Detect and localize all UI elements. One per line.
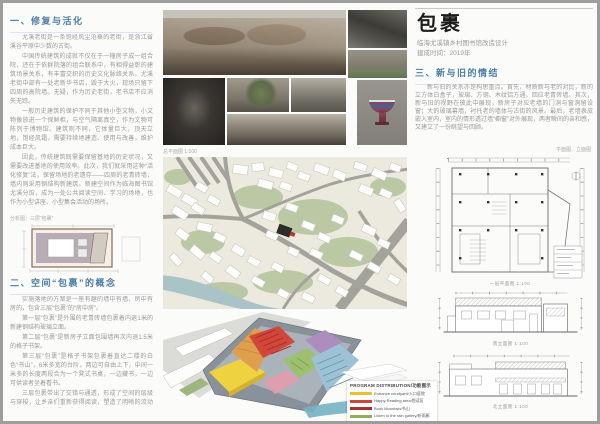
elev1-building	[448, 298, 568, 332]
photo-porcelain-bowl	[357, 80, 407, 145]
paragraph: 因此，传统建筑既需要保留基地的历史状况，又需要改进基地的使用效率。此次，我们就采…	[10, 154, 153, 208]
axon-diagram-wrapper: PROGRAM DISTRIBUTION/功能图示 Entrance court…	[163, 312, 407, 422]
inner-room	[78, 249, 87, 257]
legend-row: Listen to the rain gallery/听雨廊	[350, 413, 434, 419]
drawings-caption: 平面图、立面图	[500, 146, 591, 153]
section1-text: 尤溪老街是一条饱经风尘沧桑的老街，是浙江省溪谷平原中少数的古街。 中国传统建筑的…	[10, 34, 153, 212]
paragraph: 新与旧的关系亦是构思重点。首先，材质新与老的对比，新的立方体白盒子，玻璃、方钢、…	[415, 84, 593, 132]
section2-heading: 二、空间“包裹”的概念	[10, 276, 152, 295]
legend-label: Listen to the rain gallery/听雨廊	[374, 413, 430, 419]
cad-elevation-north	[433, 352, 588, 402]
project-title: 包裹	[417, 13, 463, 35]
cad-elevation-south	[433, 290, 588, 338]
inner-room	[78, 239, 87, 246]
concept-plan-diagram	[18, 223, 150, 273]
section3-heading: 三、新与旧的情结	[415, 66, 593, 85]
photo-dark-interior	[163, 78, 225, 145]
adjacent-context-outline	[122, 237, 140, 261]
paragraph: 尤溪老街是一条饱经风尘沧桑的老街，是浙江省溪谷平原中少数的古街。	[10, 34, 153, 52]
siteplan-caption: 总平面图 1:500	[163, 148, 197, 155]
photo-street-view	[227, 114, 346, 145]
elevation2-caption: 北立面图 1:100	[433, 404, 588, 410]
photo-dark-eaves	[348, 10, 407, 48]
bowl-stem	[379, 113, 386, 122]
bowl-foot	[375, 122, 389, 125]
plan-north-arrow	[572, 172, 580, 180]
legend-swatch	[350, 415, 372, 418]
legend-label: Book Mountain/书山	[374, 406, 410, 412]
paragraph: 实施落地的方案是一座有趣的墙中有墙、房中有房的，包含三层“包裹”的“房中房”。	[10, 296, 153, 314]
paragraph: 一般历史建筑的保护不同于其他小型文物，小文物像放进一个保鲜柜，与空气隔离真空，作…	[10, 108, 153, 153]
paragraph: 三层包裹带出了交错与通透，形成了空间的层级与穿梭，让乡亲们重新获得阅读，塑造了明…	[10, 390, 153, 408]
paragraph: 第三层“包裹”是格子书架包裹着直达二楼的白色“书山”，6米多宽的台阶，两边可自由…	[10, 353, 153, 389]
project-subtitle: 临海尤溪镇乡村图书馆改造设计	[417, 39, 508, 49]
plan-title-block	[554, 246, 582, 278]
legend-row: Book Mountain/书山	[350, 406, 434, 412]
presentation-board: 一、修复与活化 尤溪老街是一条饱经风尘沧桑的老街，是浙江省溪谷平原中少数的古街。…	[0, 0, 600, 424]
photo-tiled-roofs	[291, 78, 346, 112]
bowl-cup	[369, 100, 395, 113]
legend-swatch	[350, 400, 372, 403]
elev2-building	[450, 362, 568, 396]
section2-text: 实施落地的方案是一座有趣的墙中有墙、房中有房的，包含三层“包裹”的“房中房”。 …	[10, 296, 153, 408]
paragraph: 第二层“包裹”是新房子立面包围墙再次内退1.5米的格子书架。	[10, 334, 153, 352]
section3-text: 新与旧的关系亦是构思重点。首先，材质新与老的对比，新的立方体白盒子，玻璃、方钢、…	[415, 84, 593, 144]
legend-row: Happy Reading area/悦读区	[350, 398, 434, 404]
inner-book-mountain	[48, 239, 74, 257]
concept-diagram-caption: 分析图：三层“包裹”	[10, 215, 53, 222]
paragraph: 中国传统建筑的成就不仅在于一幢房子成一组合院，还在于依群院落的组合联系中，有相得…	[10, 53, 153, 107]
legend-label: Happy Reading area/悦读区	[374, 398, 424, 404]
photo-ruined-walls	[348, 50, 407, 78]
photo-old-street-houses	[163, 10, 346, 75]
site-plan-map	[163, 157, 407, 309]
plan-columns	[459, 173, 543, 259]
legend-title: PROGRAM DISTRIBUTION/功能图示	[350, 383, 434, 389]
legend-swatch	[350, 392, 372, 395]
project-completion: 建成时间：2019年	[417, 49, 470, 59]
elevation1-caption: 南立面图 1:100	[433, 341, 588, 347]
cad-floor-plan	[430, 154, 590, 280]
plan-walls	[452, 168, 570, 272]
photo-courtyard-tree	[227, 78, 289, 112]
header-rule	[415, 8, 593, 9]
section1-heading: 一、修复与活化	[10, 14, 152, 33]
paragraph: 第一层“包裹”是外围的老青砖墙包裹着内退1米的新建钢结构玻璃立面。	[10, 315, 153, 333]
legend-label: Entrance courtyard/入口庭院	[374, 391, 425, 397]
legend-swatch	[350, 407, 372, 410]
legend-row: Entrance courtyard/入口庭院	[350, 391, 434, 397]
program-legend: PROGRAM DISTRIBUTION/功能图示 Entrance court…	[347, 381, 437, 424]
plan-drawing-caption: 一层平面图 1:100	[430, 281, 590, 287]
